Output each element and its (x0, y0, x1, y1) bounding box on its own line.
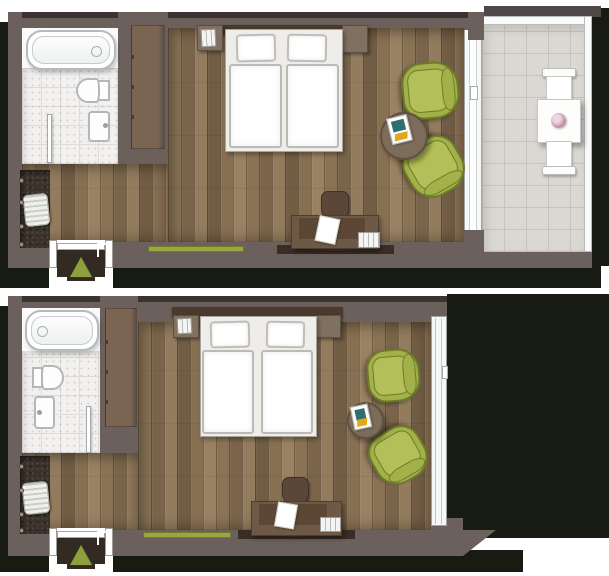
plan2-shadow-right-block (447, 294, 609, 538)
plan2-door-foot-right (95, 564, 105, 574)
plan2-door-swing-h (97, 531, 109, 533)
plan2-wardrobe-handle-1 (105, 340, 108, 344)
plan2-wall-hook-4 (19, 528, 24, 533)
plan2-paper-sheet (274, 501, 298, 529)
plan2-wardrobe (105, 308, 137, 427)
plan2-bathtub-drain (37, 326, 48, 337)
plan2-luggage-rack (21, 481, 50, 516)
plan2-green-runner (143, 532, 231, 538)
plan2-nightstand (316, 315, 341, 338)
plan2-bathroom-door (86, 406, 91, 453)
plan2-wall-bottom-wedge (463, 530, 496, 556)
plan2-shadow-left (0, 306, 8, 556)
plan2-duvet-left (202, 350, 254, 434)
plan2-book-stack (320, 517, 341, 532)
plan2-wall-hook-2 (19, 488, 24, 493)
window (431, 316, 447, 526)
plan2-washbasin-faucet (37, 410, 42, 415)
window-glazing-line-1 (435, 318, 436, 524)
plan2-duvet-right (261, 350, 313, 434)
plan-room-with-window (0, 0, 609, 576)
plan2-pillow-left (210, 320, 251, 348)
plan2-toilet-bowl (41, 365, 64, 390)
plan2-door-foot-left (57, 564, 67, 574)
floor-plans-canvas (0, 0, 609, 576)
plan2-door-swing-v (97, 531, 99, 545)
plan2-door-jamb-left (49, 528, 57, 556)
plan2-wardrobe-handle-2 (105, 370, 108, 374)
window-glazing-line-2 (441, 318, 442, 524)
plan2-wall-hook-1 (19, 464, 24, 469)
plan2-wall-hook-3 (19, 512, 24, 517)
plan2-bathtub (25, 310, 99, 351)
plan2-wardrobe-handle-3 (105, 400, 108, 404)
plan2-bedside-books (177, 318, 193, 335)
plan2-entrance-arrow (70, 545, 92, 565)
window-handle (442, 366, 448, 379)
plan2-pillow-right (266, 321, 305, 349)
